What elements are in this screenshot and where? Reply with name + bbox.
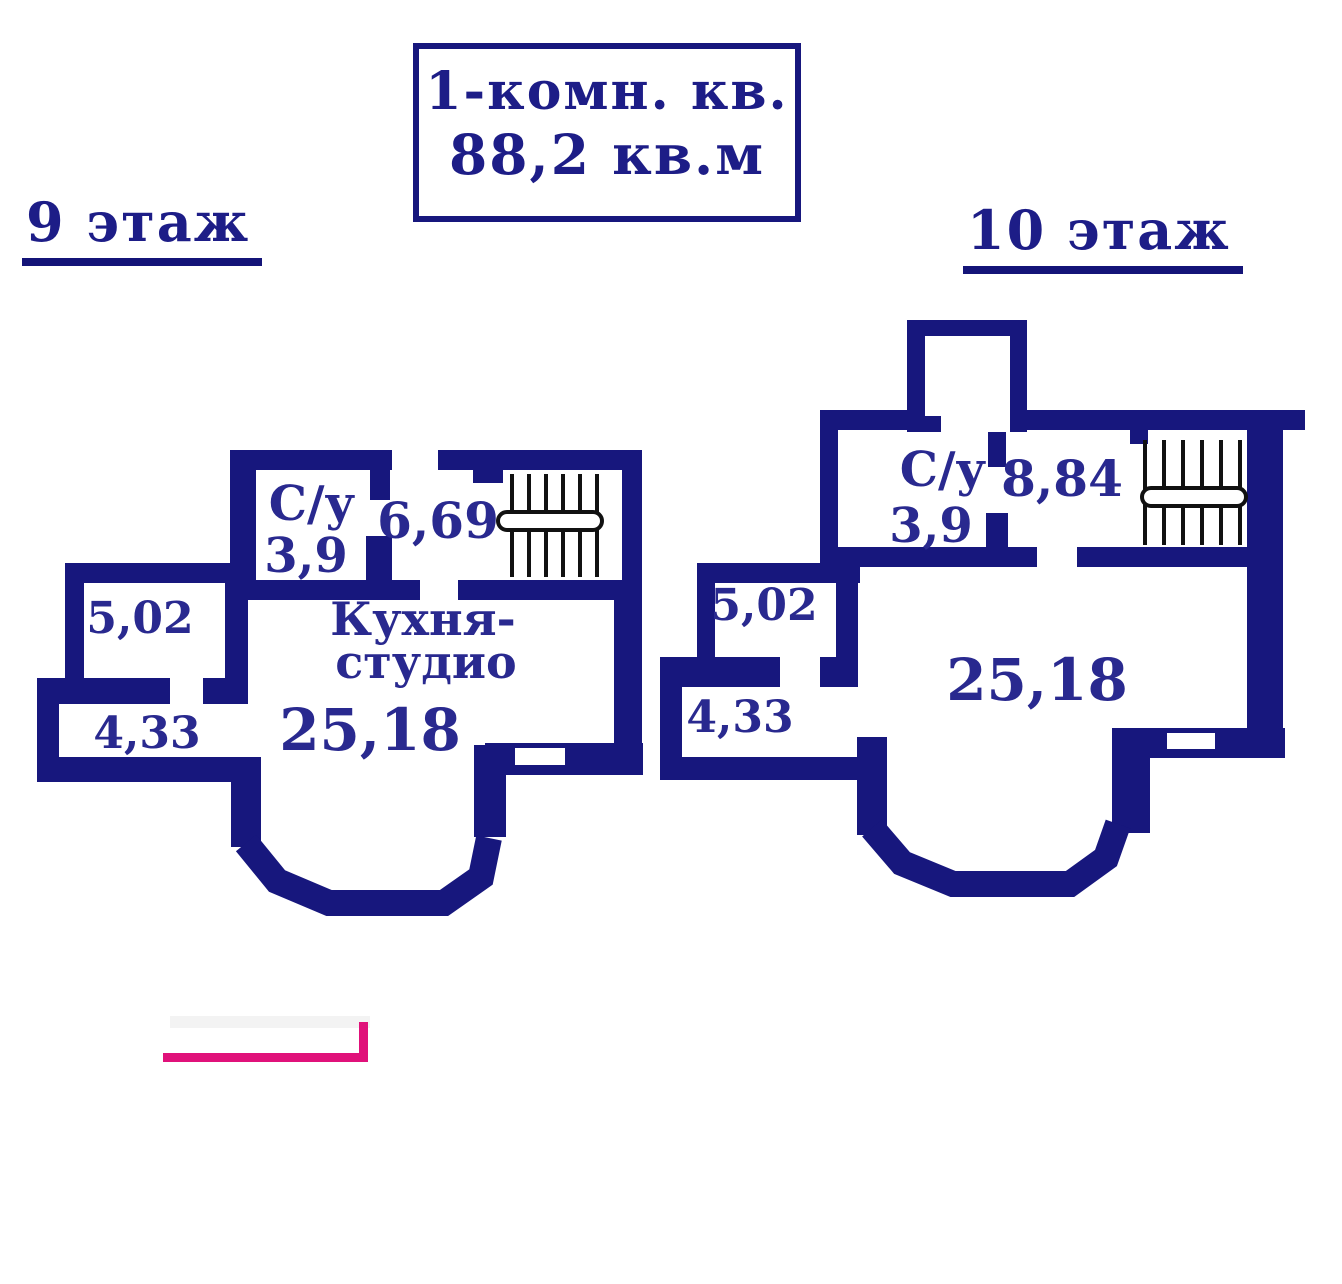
title-line2: 88,2 кв.м [419, 126, 795, 184]
floor-label-10: 10 этаж [963, 198, 1243, 274]
room-area-main-10: 25,18 [946, 646, 1128, 714]
window-opening [515, 748, 565, 765]
room-area-storage-10: 5,02 [710, 580, 817, 631]
room-area-hallway-9: 4,33 [93, 708, 200, 759]
floor-label-9: 9 этаж [22, 190, 262, 266]
bay-window [246, 838, 489, 903]
room-label-wc-10: С/у [900, 442, 987, 498]
room-area-hallway-10: 4,33 [686, 692, 793, 743]
title-box: 1-комн. кв. 88,2 кв.м [413, 43, 801, 222]
room-area-hall-9: 6,69 [377, 491, 499, 550]
bay-window [872, 824, 1118, 884]
room-name-kitchen-line2: студио [335, 635, 516, 689]
stairs-icon [498, 474, 602, 577]
room-label-wc-9: С/у [269, 476, 356, 532]
room-area-wc-10: 3,9 [889, 498, 973, 554]
stairs-icon [1142, 440, 1246, 545]
title-line1: 1-комн. кв. [419, 65, 795, 120]
scale-mark [163, 1022, 368, 1062]
floorplan-canvas: 1-комн. кв. 88,2 кв.м 9 этаж 10 этаж [0, 0, 1342, 1284]
room-area-wc-9: 3,9 [264, 528, 348, 584]
floorplan-9: С/у 3,9 6,69 5,02 4,33 Кухня- студио 25,… [25, 450, 645, 950]
window-opening [1167, 733, 1215, 749]
room-area-kitchen-9: 25,18 [279, 696, 461, 764]
floorplan-10: С/у 3,9 8,84 5,02 4,33 25,18 [650, 320, 1310, 900]
walls-10 [660, 320, 1305, 835]
room-area-hall-10: 8,84 [1001, 449, 1123, 508]
room-area-storage-9: 5,02 [86, 593, 193, 644]
